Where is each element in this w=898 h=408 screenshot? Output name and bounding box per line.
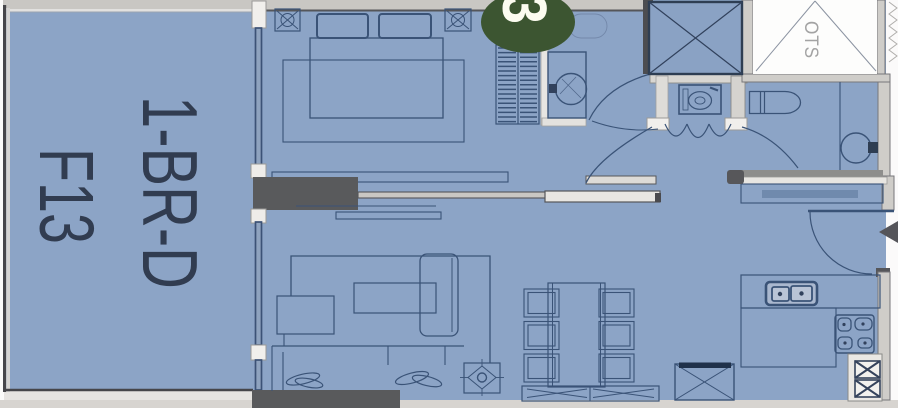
svg-text:F13: F13: [23, 148, 109, 244]
svg-text:OTS: OTS: [800, 21, 821, 59]
svg-text:1-BR-D: 1-BR-D: [126, 96, 214, 289]
svg-text:3: 3: [489, 0, 558, 24]
